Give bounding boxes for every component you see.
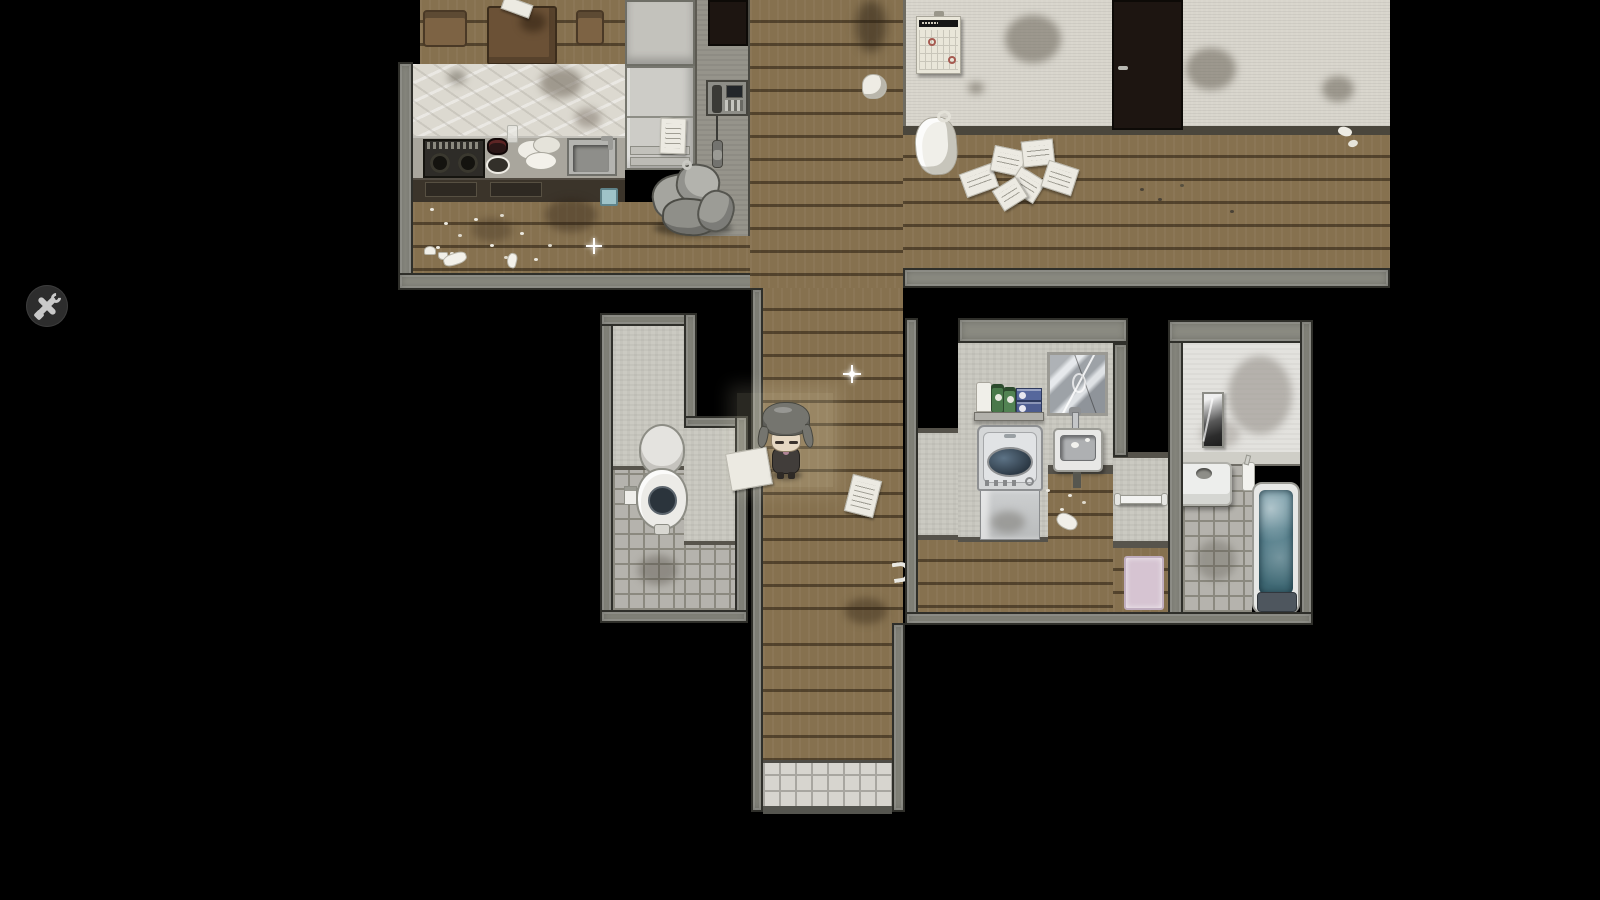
sparkle-corridor[interactable] (843, 365, 861, 383)
laundry-alcove-wall (918, 428, 958, 540)
toilet-wall-n (600, 313, 697, 326)
bathroom-tile-stain (1196, 540, 1236, 580)
toilet-paper-holder (624, 486, 637, 505)
food-scraps (430, 208, 434, 211)
hallway-wall-stain (1322, 76, 1354, 102)
crumpled-paper (862, 74, 887, 99)
intercom-screen (726, 85, 743, 98)
tile-stain (638, 555, 678, 585)
chair-left (423, 10, 467, 47)
paper-towels (976, 382, 992, 412)
dish-bowl (488, 158, 508, 172)
garbage-bag-pile (652, 164, 738, 242)
corridor-stain (845, 598, 887, 624)
stove (423, 139, 485, 178)
calendar-mark (928, 38, 936, 46)
toilet-bowl-hole (648, 486, 677, 515)
egg-shell (424, 246, 436, 255)
wall-cabinet (625, 0, 695, 66)
kitchen-floor-stain (545, 198, 597, 232)
hallway-wall-stain (1005, 15, 1061, 63)
hallway-door (1112, 0, 1183, 130)
laundry-wall-e (1113, 343, 1128, 457)
washer-glass (987, 447, 1033, 477)
white-trash-bag (913, 110, 961, 179)
fridge-note (659, 118, 686, 155)
pump-nozzle (1244, 455, 1251, 466)
washer-smudge (991, 511, 1025, 533)
cabinet-drawer (490, 182, 542, 197)
box-hole (1196, 468, 1212, 479)
bag-tie (682, 160, 692, 170)
dirty-dishes (517, 136, 563, 172)
character-leg (788, 472, 795, 479)
sink-drain-pipe (1073, 472, 1081, 488)
toilet-wall-ext (684, 428, 735, 545)
calendar-header (919, 20, 958, 27)
bath-water (1259, 490, 1293, 594)
toilet-wall-notch-e (684, 313, 697, 428)
chair-right (576, 10, 604, 45)
hallway-wall-stain (968, 82, 984, 94)
laundry-wall-n (958, 318, 1128, 343)
intercom-handset (712, 85, 722, 113)
kitchen-bottom-wall (398, 273, 763, 290)
backsplash-stain (575, 108, 601, 128)
character-eye (775, 441, 784, 444)
cabinet-drawer (425, 182, 477, 197)
kitchen-left-wall (398, 62, 413, 290)
player-character (760, 402, 812, 482)
toilet (634, 424, 690, 536)
hallway-floor-dirt (1140, 188, 1144, 191)
bathtub (1252, 482, 1300, 614)
washer-dial (1025, 477, 1034, 486)
calendar-grid (919, 30, 958, 70)
refrigerator (625, 66, 695, 170)
detergent-bottle-green (1003, 387, 1016, 414)
bathroom-wall-n (1168, 320, 1313, 343)
cooking-pot (487, 138, 508, 155)
character-hair-shine (774, 407, 792, 413)
entry-tile-step (763, 760, 892, 808)
towel-bar-endcap (1114, 493, 1121, 506)
laundry-debris (1046, 489, 1050, 492)
hallway-wall-stain (1186, 48, 1236, 90)
washing-machine (977, 425, 1043, 540)
toilet-tiles (684, 545, 735, 610)
corridor-left-wall (751, 288, 763, 812)
corridor-smudge (856, 0, 886, 52)
block-wall-w (905, 318, 918, 625)
backsplash-stain (448, 70, 466, 84)
hallway-bottom-wall (903, 268, 1390, 288)
blue-bin (600, 188, 618, 206)
pink-bath-mat (1124, 556, 1164, 610)
intercom-buttons (725, 100, 743, 111)
character-eye (789, 441, 798, 444)
kitchen-sink (567, 138, 617, 176)
character-bangs (767, 418, 805, 434)
shelf-board (974, 412, 1044, 421)
faucet-spout (601, 136, 613, 141)
bathroom-wall-w (1168, 320, 1183, 625)
corridor-right-wall (892, 623, 905, 812)
sparkle-kitchen[interactable] (586, 238, 602, 254)
washer-lid-handle (1004, 434, 1016, 438)
kitchen-floor-stain (472, 218, 512, 242)
stove-burner (458, 153, 478, 173)
toilet-wall-s (600, 610, 748, 623)
block-wall-e (1300, 320, 1313, 625)
phone-cord (716, 116, 718, 142)
backsplash-stain (540, 68, 582, 98)
tub-drain-step (1257, 592, 1297, 612)
stove-controls (427, 142, 481, 149)
dark-doorway-top (708, 0, 748, 46)
door-handle (1118, 66, 1128, 70)
stove-burner (430, 153, 450, 173)
settings-button[interactable] (26, 285, 68, 327)
sink-basin (1060, 435, 1096, 461)
towel-bar (1116, 495, 1166, 504)
character-leg (777, 472, 784, 479)
toilet-wall-w (600, 313, 613, 623)
toilet-base (654, 524, 670, 535)
tall-mirror (1202, 392, 1224, 448)
calendar-mark (948, 56, 956, 64)
corridor-low-floor (763, 623, 892, 762)
block-wall-s (905, 612, 1313, 625)
hallway-floor (903, 135, 1390, 268)
towel-bar-endcap (1161, 493, 1168, 506)
entry-edge (763, 806, 892, 814)
detergent-box-blue (1016, 388, 1042, 401)
game-viewport[interactable] (0, 0, 1600, 900)
wall-sink (1053, 428, 1103, 472)
intercom-phone (706, 80, 748, 116)
wall-calendar (916, 16, 961, 74)
bathroom-wall-smudge (1228, 356, 1292, 434)
washer-controls (985, 480, 1019, 486)
